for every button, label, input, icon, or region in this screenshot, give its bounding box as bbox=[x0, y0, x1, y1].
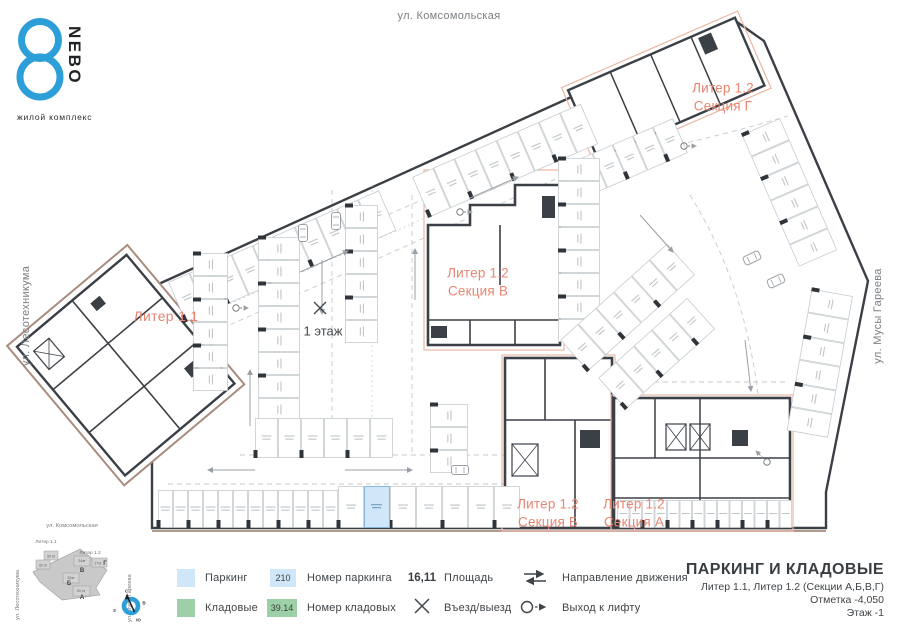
minimap-liter12-label: Литер 1.2 bbox=[79, 550, 101, 556]
logo-8-icon bbox=[20, 22, 60, 98]
label-line: Литер 1.2 bbox=[692, 79, 754, 97]
minimap-section-letter: Б bbox=[67, 581, 72, 587]
storage-number-example: 39.14 bbox=[267, 599, 297, 617]
parking-color-chip bbox=[177, 569, 195, 587]
minimap-floors: 24эт bbox=[78, 559, 86, 563]
storage-number-label: Номер кладовых bbox=[307, 602, 396, 614]
storage-color-chip bbox=[177, 599, 195, 617]
title-subtitle: Литер 1.1, Литер 1.2 (Секции А,Б,В,Г) bbox=[584, 581, 884, 593]
label-line: Секция Г bbox=[692, 97, 754, 115]
minimap-floors: 17эт bbox=[94, 562, 102, 566]
area-label: Площадь bbox=[444, 572, 493, 584]
street-label-top: ул. Комсомольская bbox=[369, 10, 529, 22]
minimap-section-letter: В bbox=[80, 568, 85, 574]
minimap: ул. Комсомольская ул. Лесотехникума ул. … bbox=[15, 523, 146, 623]
compass-south: Ю bbox=[136, 618, 141, 623]
minimap-floors: 20эт bbox=[67, 576, 75, 580]
logo-subtitle: жилой комплекс bbox=[17, 112, 92, 122]
minimap-floors: 30 эт bbox=[47, 555, 56, 559]
area-example: 16,11 bbox=[398, 572, 436, 584]
minimap-street-top: ул. Комсомольская bbox=[46, 523, 98, 529]
street-label-left: ул. Лесотехникума bbox=[20, 266, 32, 366]
label-line: Литер 1.2 bbox=[447, 264, 509, 282]
page: ул. Комсомольская ул. Лесотехникума ул. … bbox=[0, 0, 900, 637]
highlighted-parking-spot[interactable] bbox=[365, 487, 390, 528]
label-line: Секция А bbox=[603, 513, 665, 531]
label-section-b: Литер 1.2 Секция Б bbox=[517, 495, 579, 530]
label-liter-1-1: Литер 1.1 bbox=[134, 308, 199, 324]
minimap-section-letter: Г bbox=[103, 561, 107, 567]
direction-icon bbox=[524, 574, 546, 581]
entry-exit-icon bbox=[415, 599, 429, 613]
label-line: Секция В bbox=[447, 282, 509, 300]
entry-exit-label: Въезд/выезд bbox=[444, 602, 511, 614]
compass-east: В bbox=[142, 601, 146, 606]
minimap-street-left: ул. Лесотехникума bbox=[15, 569, 21, 620]
page-title: ПАРКИНГ И КЛАДОВЫЕ bbox=[584, 561, 884, 579]
label-line: Литер 1.2 bbox=[603, 495, 665, 513]
label-line: Литер 1.2 bbox=[517, 495, 579, 513]
minimap-liter11-label: Литер 1.1 bbox=[35, 539, 57, 545]
label-line: Секция Б bbox=[517, 513, 579, 531]
label-section-a: Литер 1.2 Секция А bbox=[603, 495, 665, 530]
elevation-line: Отметка -4,050 bbox=[584, 594, 884, 606]
compass-west: З bbox=[113, 608, 116, 613]
label-section-g: Литер 1.2 Секция Г bbox=[692, 79, 754, 114]
storage-legend-label: Кладовые bbox=[205, 602, 258, 614]
minimap-section-letter: А bbox=[80, 595, 85, 601]
street-label-right: ул. Мусы Гареева bbox=[872, 268, 884, 363]
exit-to-lift-icon bbox=[522, 602, 546, 613]
title-block: ПАРКИНГ И КЛАДОВЫЕ Литер 1.1, Литер 1.2 … bbox=[584, 561, 884, 619]
label-floor-1: 1 этаж bbox=[304, 324, 343, 339]
floor-line: Этаж -1 bbox=[584, 607, 884, 619]
parking-legend-label: Паркинг bbox=[205, 572, 248, 584]
logo-name: NEBO bbox=[64, 26, 84, 85]
minimap-floors: 20 эт bbox=[77, 589, 86, 593]
label-section-v: Литер 1.2 Секция В bbox=[447, 264, 509, 299]
parking-number-example: 210 bbox=[270, 569, 296, 587]
parking-number-label: Номер паркинга bbox=[307, 572, 392, 584]
minimap-floors: 32 эт bbox=[39, 564, 48, 568]
